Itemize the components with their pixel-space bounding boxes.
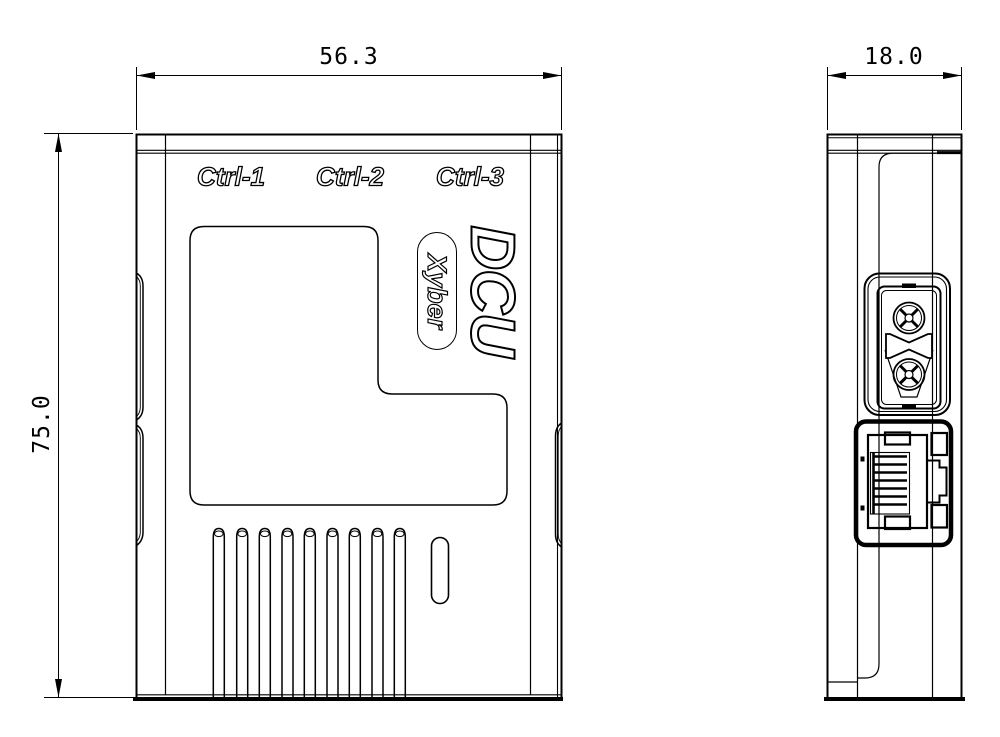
front-view xyxy=(133,135,563,700)
oval-slot xyxy=(432,538,449,604)
xt30-terminal-top xyxy=(894,303,925,334)
dimension-front-height xyxy=(44,134,133,698)
rj45-ethernet-port-icon xyxy=(856,422,951,546)
side-body-outline xyxy=(828,135,962,699)
brand-badge-text: Xyber xyxy=(422,253,453,328)
rj45-latch xyxy=(927,461,947,503)
port-label-ctrl-3: Ctrl-3 xyxy=(436,162,504,193)
technical-drawing-canvas: 56.3 18.0 75.0 Ctrl-1 Ctrl-2 Ctrl-3 DCU … xyxy=(0,0,1000,737)
dimension-front-width xyxy=(137,67,562,130)
dimension-value-front-height: 75.0 xyxy=(29,394,55,453)
side-view xyxy=(824,135,965,700)
dimension-value-side-depth: 18.0 xyxy=(864,44,923,70)
port-label-ctrl-1: Ctrl-1 xyxy=(197,162,265,193)
xt30-power-connector-icon xyxy=(865,274,951,416)
vent-fins xyxy=(213,529,405,699)
rj45-window-top xyxy=(932,433,948,455)
rj45-pins xyxy=(871,453,910,515)
drawing-linework xyxy=(0,0,1000,737)
xt30-terminal-bottom xyxy=(894,359,925,390)
dimension-side-depth xyxy=(828,67,962,130)
port-label-ctrl-2: Ctrl-2 xyxy=(316,162,384,193)
xt30-key-bowtie xyxy=(886,334,932,358)
rj45-window-bottom xyxy=(932,505,948,528)
dimension-value-front-width: 56.3 xyxy=(319,44,378,70)
product-name-label: DCU xyxy=(457,225,528,356)
brand-badge: Xyber xyxy=(417,232,457,350)
